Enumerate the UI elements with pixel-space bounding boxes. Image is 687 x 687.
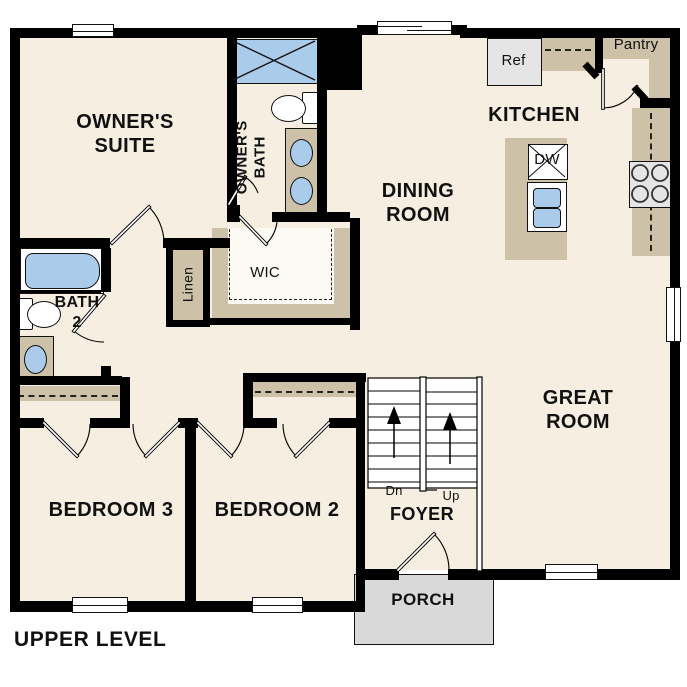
- room-label-wic: WIC: [240, 264, 290, 282]
- wall-closet2-top: [250, 373, 366, 382]
- stairs-label-up: Up: [437, 488, 465, 504]
- appliance-label-dw: DW: [528, 151, 566, 169]
- wall-foyer-left: [356, 378, 365, 602]
- counter-dash-line: [545, 49, 591, 51]
- bathtub: [25, 253, 100, 289]
- stairs-label-dn: Dn: [380, 483, 408, 499]
- plan-title: UPPER LEVEL: [14, 627, 214, 653]
- bedroom3-closet-dash: [18, 395, 118, 397]
- wall-bedroom-top-e: [329, 418, 365, 428]
- window-great-room-bottom: [545, 564, 598, 580]
- wall-wic-right: [350, 218, 360, 330]
- room-label-kitchen: KITCHEN: [478, 103, 590, 127]
- bedroom2-closet-shelf: [253, 382, 356, 397]
- bedroom2-closet-dash: [255, 391, 354, 393]
- wall-suite-bottom-b: [163, 238, 230, 248]
- island-sink-basin-bottom: [533, 208, 561, 228]
- kitchen-counter-top: [540, 33, 596, 71]
- window-great-room-right: [666, 287, 681, 342]
- wall-vanity-wic: [272, 212, 350, 222]
- bath2-sink: [24, 345, 47, 374]
- room-label-bedroom-3: BEDROOM 3: [25, 498, 197, 522]
- wall-wic-door-stub: [227, 205, 240, 222]
- owners-bath-sink-2: [290, 177, 313, 205]
- wall-closet2-left: [243, 373, 253, 428]
- bedroom3-closet-shelf: [16, 386, 120, 401]
- room-label-linen: Linen: [179, 253, 196, 317]
- wic-shelf-right: [334, 228, 350, 320]
- appliance-label-ref: Ref: [487, 52, 540, 70]
- island-sink-basin-top: [533, 188, 561, 208]
- window-bedroom2: [252, 597, 303, 613]
- wall-bath2-right-top: [101, 248, 111, 292]
- room-label-foyer: FOYER: [382, 504, 462, 526]
- room-label-bedroom-2: BEDROOM 2: [203, 498, 351, 522]
- window-bedroom3: [72, 597, 128, 613]
- room-label-owners-suite: OWNER'S SUITE: [60, 110, 190, 159]
- wall-bedroom-top-b: [90, 418, 130, 428]
- window-dining: [377, 21, 452, 35]
- wall-bath-kitchen: [317, 82, 327, 222]
- room-label-bath-2: BATH 2: [50, 293, 104, 332]
- stove: [629, 161, 674, 208]
- floor-plan: OWNER'S SUITE OWNER'S BATH BATH 2 WIC Li…: [0, 0, 687, 687]
- shower: [231, 39, 319, 84]
- room-label-great-room: GREAT ROOM: [532, 386, 624, 435]
- window-owners-suite: [72, 24, 114, 37]
- wall-chase-block: [317, 28, 362, 90]
- room-label-owners-bath: OWNER'S BATH: [234, 112, 271, 202]
- wall-pantry-bottom: [640, 98, 677, 108]
- wall-left: [10, 28, 20, 612]
- wall-closet3-top: [10, 376, 122, 385]
- wall-suite-bottom-a: [10, 238, 110, 248]
- room-label-dining-room: DINING ROOM: [366, 179, 470, 228]
- wall-bedroom-top-a: [10, 418, 44, 428]
- owners-bath-toilet-bowl: [271, 95, 306, 122]
- room-label-porch: PORCH: [386, 590, 460, 611]
- owners-bath-sink-1: [290, 139, 313, 167]
- room-label-pantry: Pantry: [601, 36, 671, 54]
- wall-top-left: [10, 28, 320, 38]
- wall-wic-bottom: [210, 318, 350, 325]
